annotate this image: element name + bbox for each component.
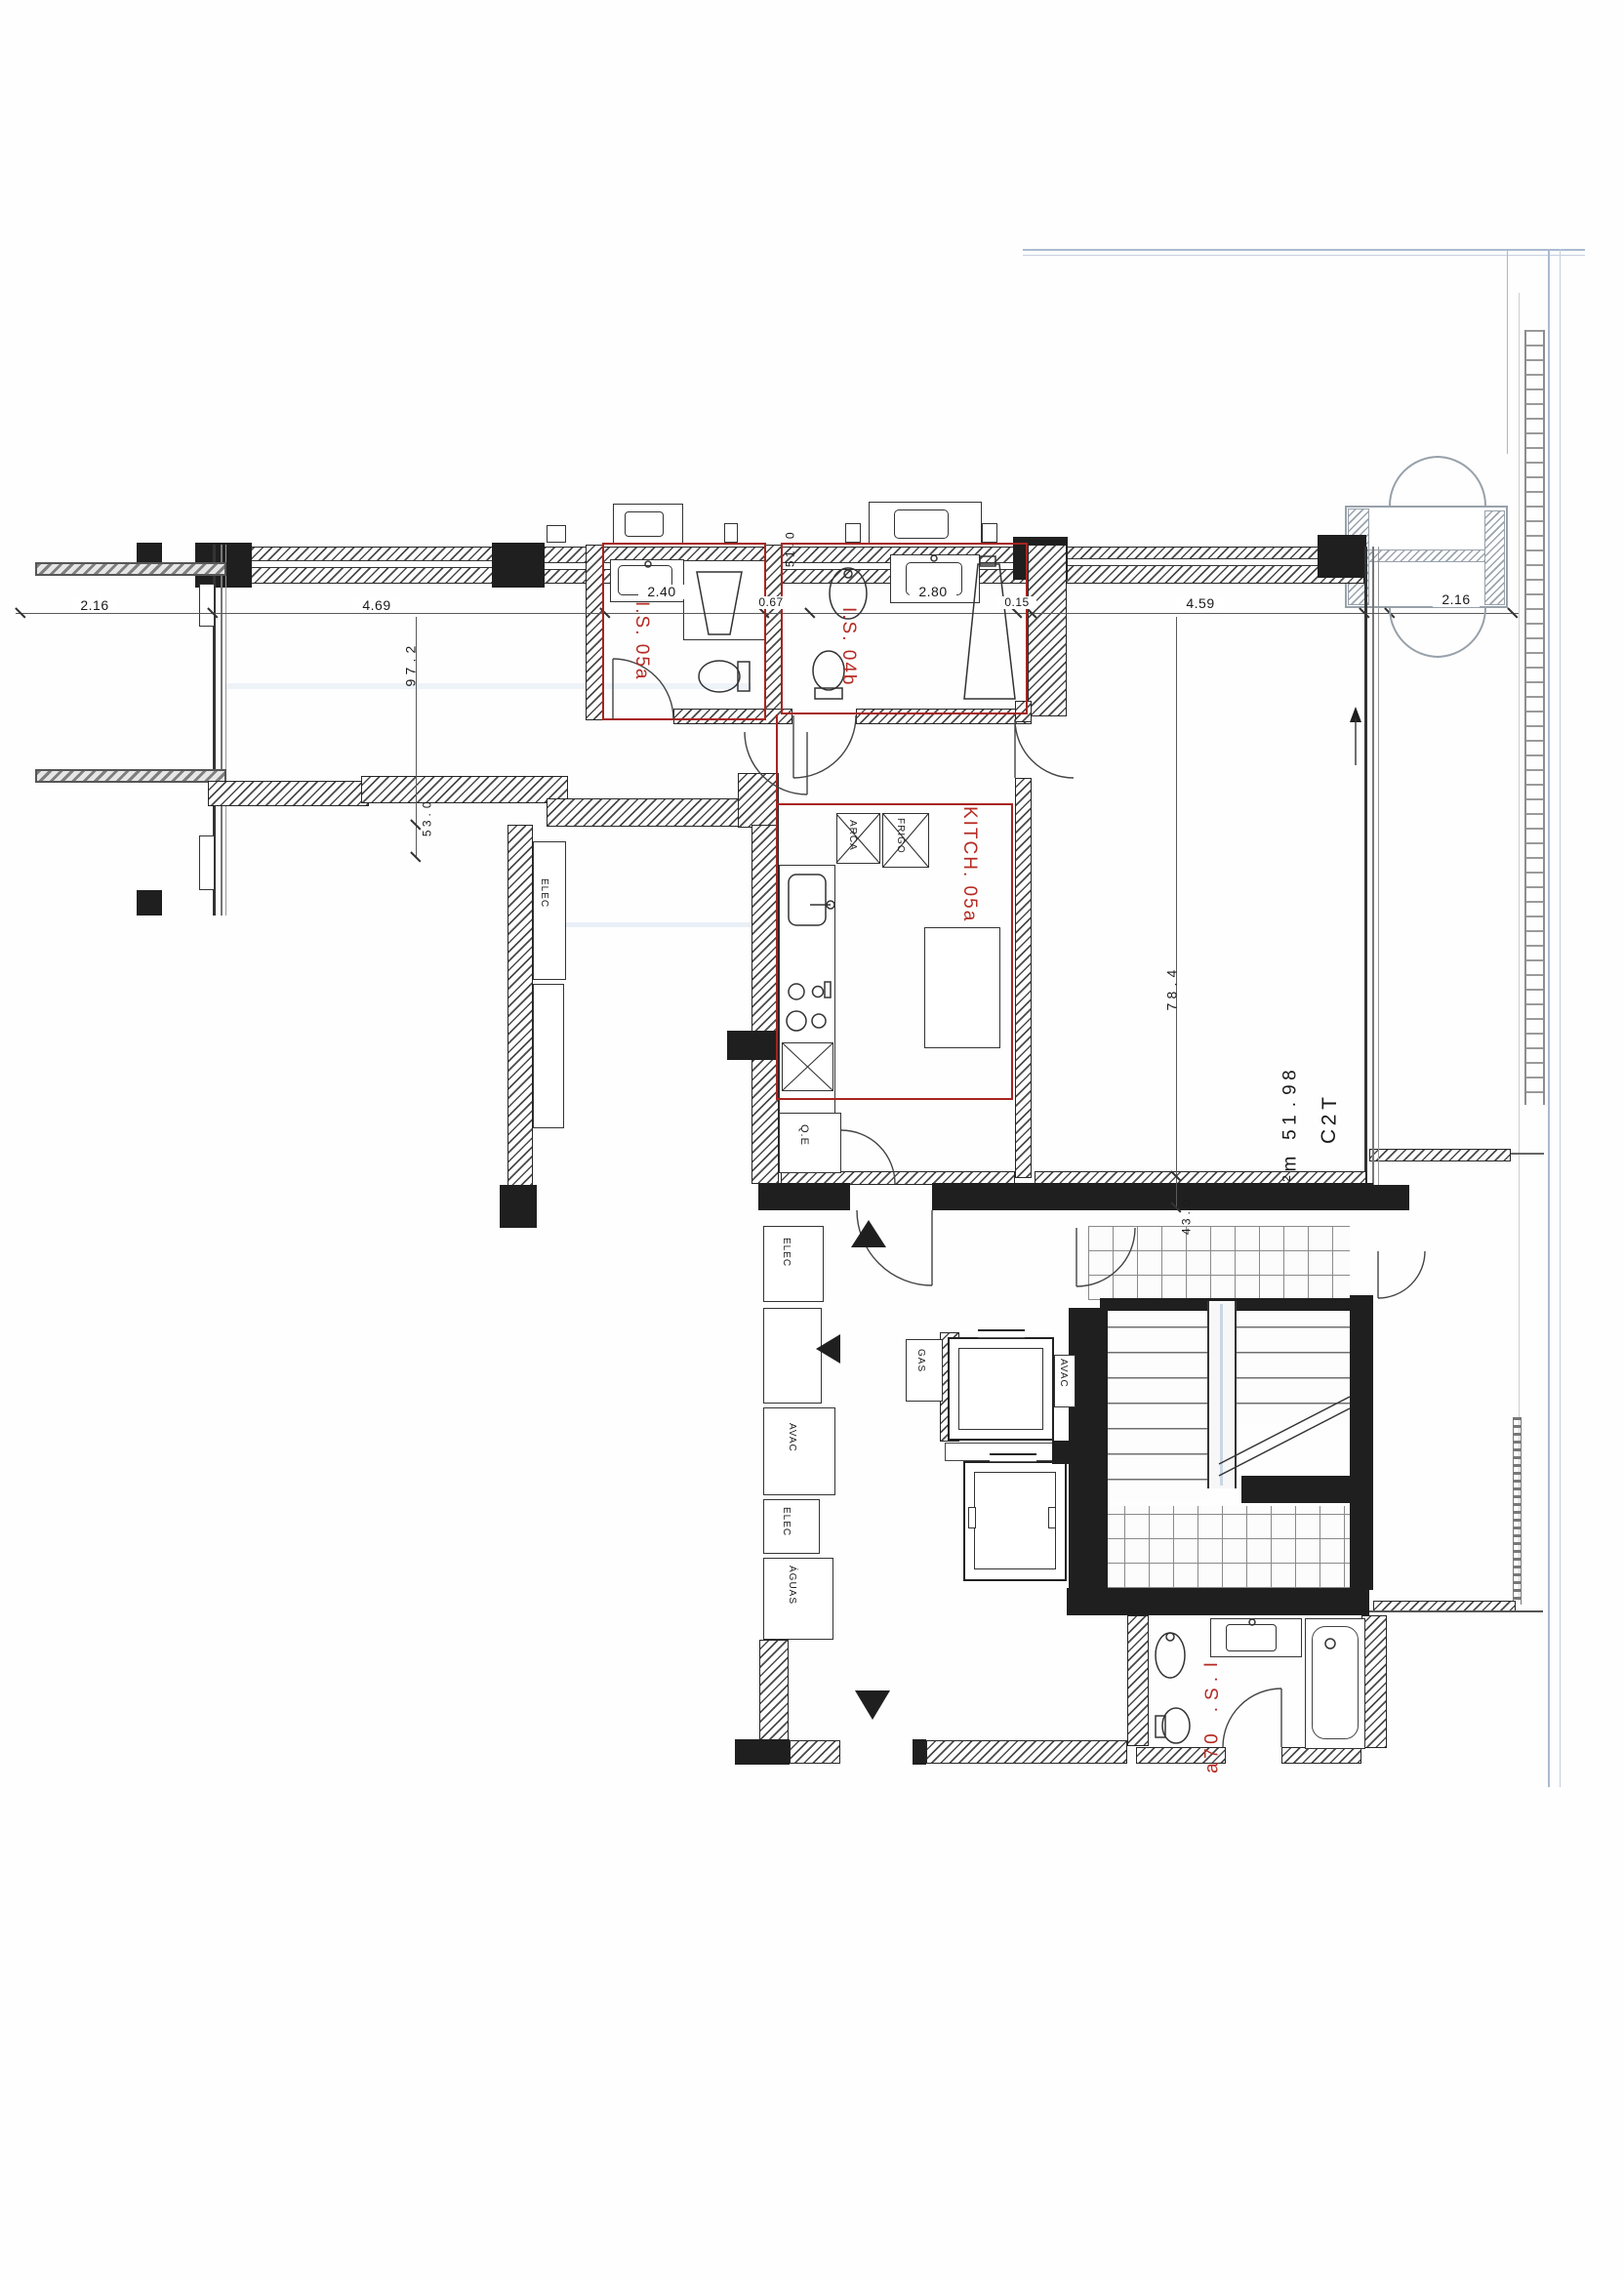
window-strip-living xyxy=(250,560,494,568)
label-gas: GAS xyxy=(915,1349,926,1392)
wall-nib xyxy=(724,523,738,543)
unit-area-label: 89.15 m² xyxy=(1277,1068,1304,1187)
vanity-basin-05a xyxy=(625,511,664,537)
window-strip-bedroom xyxy=(1068,558,1318,566)
wall-west-bottom xyxy=(137,890,162,916)
wall-kitchen-west xyxy=(751,825,779,1184)
wall-nib xyxy=(845,523,861,543)
wall-stair-west xyxy=(1069,1308,1108,1591)
wall-bath05a-west xyxy=(586,545,603,720)
floor-plan: 2.16 4.69 2.40 0.67 2.80 0.15 4.59 2.16 … xyxy=(0,0,1624,2280)
shaft-closet xyxy=(763,1308,822,1404)
glazing-east-2 xyxy=(1372,547,1374,1210)
shaft-elec-2 xyxy=(763,1226,824,1302)
shaft-avac-1 xyxy=(763,1407,835,1495)
facade-ladder xyxy=(1524,330,1545,1105)
wall-west-top xyxy=(137,543,162,564)
corridor-right-line xyxy=(1369,1610,1543,1612)
wall-living-south-3 xyxy=(547,798,753,827)
elevator-b-car xyxy=(974,1472,1056,1569)
shaft-elec-3 xyxy=(763,1499,820,1554)
dim-280: 2.80 xyxy=(910,585,956,599)
dim-035: 0.35 xyxy=(418,800,437,837)
wall-pier-4 xyxy=(1318,535,1366,578)
landing-tiles-bottom xyxy=(1100,1506,1350,1588)
masonry-strip xyxy=(1513,1417,1522,1605)
redline-bath-to-kitchen xyxy=(776,714,778,804)
toilet-07a xyxy=(1162,1708,1190,1743)
balcony-door-arc-4 xyxy=(1437,608,1485,657)
dimline-v-bedroom xyxy=(1176,617,1177,1207)
bidet-tap-07a xyxy=(1166,1633,1174,1641)
door-arc-stair-corridor xyxy=(1378,1251,1425,1298)
dim-240: 2.40 xyxy=(638,585,685,599)
wall-nib xyxy=(982,523,997,543)
room-label-bath07a: I.S. 07a xyxy=(1198,1657,1226,1776)
vanity-basin-04b xyxy=(894,509,949,539)
label-arca: ARCA xyxy=(847,820,858,859)
stair-flight-right xyxy=(1237,1301,1350,1424)
glazing-west-2 xyxy=(221,545,223,916)
balcony-door-arc-3 xyxy=(1390,608,1439,657)
wall-hall-west-cap xyxy=(500,1185,537,1228)
wall-hall-west xyxy=(507,825,533,1227)
door-arc-entrance xyxy=(857,1210,932,1285)
balcony-mid-bar xyxy=(1359,550,1495,562)
shaft-aguas xyxy=(763,1558,833,1640)
elevator-b-rail-left xyxy=(968,1507,976,1528)
wall-stair-east xyxy=(1350,1295,1373,1590)
wall-kitchen-west-pier xyxy=(727,1031,782,1060)
label-elec-2: ELEC xyxy=(781,1238,792,1292)
elevator-b-door xyxy=(990,1453,1036,1462)
room-outline-bath04b xyxy=(781,543,1028,714)
arrow-up-triangle xyxy=(851,1220,886,1247)
wall-bath04b-east xyxy=(1028,545,1067,716)
dim-469: 4.69 xyxy=(353,598,400,613)
dim-015: 0.15 xyxy=(997,596,1036,609)
dim-459: 4.59 xyxy=(1177,596,1224,611)
dim-216-right: 2.16 xyxy=(1433,592,1480,607)
dim-216-left: 2.16 xyxy=(72,598,117,613)
window-arrow-head xyxy=(1350,707,1361,722)
toilet-tank-07a xyxy=(1156,1716,1165,1737)
label-elec-3: ELEC xyxy=(781,1507,792,1550)
bathtub-07a-inner xyxy=(1312,1626,1359,1739)
balcony-door-arc-2 xyxy=(1437,457,1485,506)
door-arc-bedroom xyxy=(1015,719,1074,778)
unit-type-label: T2C xyxy=(1316,1095,1345,1144)
arrow-down-triangle xyxy=(855,1690,890,1720)
wall-living-south-2 xyxy=(361,776,568,803)
window-jamb xyxy=(199,584,215,627)
glazing-west-3 xyxy=(225,545,226,916)
label-qe: Q.E xyxy=(798,1124,810,1163)
dim-487: 4.87 xyxy=(1161,968,1183,1012)
elevator-b-rail-right xyxy=(1048,1507,1056,1528)
glazing-east-3 xyxy=(1378,547,1379,1210)
wall-nib xyxy=(547,525,566,543)
elevator-a-door xyxy=(978,1329,1025,1338)
wall-stair-south xyxy=(1067,1588,1369,1615)
wall-bath07a-west xyxy=(1127,1615,1149,1746)
wall-between-baths xyxy=(764,545,782,714)
label-avac-1: AVAC xyxy=(787,1423,797,1482)
wall-landing-west xyxy=(759,1640,789,1741)
facade-line-gray2 xyxy=(1519,293,1520,1601)
glazing-east-1 xyxy=(1364,547,1367,1210)
label-frigo: FRIGO xyxy=(895,818,906,865)
terrace-line xyxy=(1511,1153,1544,1155)
wall-stair-mid-landing xyxy=(1241,1476,1350,1503)
stair-flight-left xyxy=(1100,1301,1207,1502)
wall-south-exit-mid xyxy=(913,1739,926,1765)
dim-067: 0.67 xyxy=(751,596,791,609)
vanity-07a-basin xyxy=(1226,1624,1277,1651)
wall-south-exit-hatch1 xyxy=(790,1740,840,1764)
wall-terrace-band xyxy=(1369,1149,1511,1161)
wall-pier-2 xyxy=(492,543,545,588)
wall-bath07a-south2 xyxy=(1281,1747,1361,1764)
label-elec-1: ELEC xyxy=(539,878,549,941)
wall-south-exit-hatch2 xyxy=(926,1740,1127,1764)
stair-divider-rail xyxy=(1220,1304,1223,1486)
facade-line-right xyxy=(1548,249,1550,1787)
room-label-kitchen: KITCH. 05a xyxy=(958,806,980,972)
dim-015v: 0.15 xyxy=(781,531,800,568)
wall-bedroom-west xyxy=(1015,778,1032,1178)
wall-living-south-1 xyxy=(208,781,369,806)
wall-south-black-left xyxy=(758,1183,850,1210)
balcony-door-arc-1 xyxy=(1390,457,1439,506)
balcony-rail-lower xyxy=(35,769,226,783)
facade-line-top2 xyxy=(1023,255,1585,256)
facade-line-right2 xyxy=(1560,249,1561,1787)
dim-279: 2.79 xyxy=(400,644,422,688)
balcony-rail-upper xyxy=(35,562,226,576)
room-label-bath04b: I.S. 04b xyxy=(837,607,859,718)
room-outline-bath05a xyxy=(602,543,766,720)
facade-line-top xyxy=(1023,249,1585,251)
landing-tiles-top xyxy=(1088,1226,1350,1300)
wall-south-exit-left xyxy=(735,1739,790,1765)
label-avac-2: AVAC xyxy=(1058,1359,1069,1405)
facade-line-gray xyxy=(1507,249,1508,454)
door-arc-bath04b xyxy=(793,715,856,778)
label-aguas: ÁGUAS xyxy=(787,1566,797,1630)
dim-034: 0.34 xyxy=(1177,1199,1197,1236)
bidet-07a xyxy=(1156,1633,1185,1678)
room-label-bath05a: I.S. 05a xyxy=(630,601,652,718)
door-arc-bath07a xyxy=(1223,1689,1281,1747)
elevator-a-car xyxy=(958,1348,1043,1430)
window-jamb xyxy=(199,835,215,890)
wall-south-black-right xyxy=(932,1183,1373,1210)
qe-closet xyxy=(779,1113,841,1173)
balcony-right-jamb xyxy=(1484,510,1505,605)
wall-living-south-corner xyxy=(738,773,779,828)
closet-empty xyxy=(533,984,564,1128)
